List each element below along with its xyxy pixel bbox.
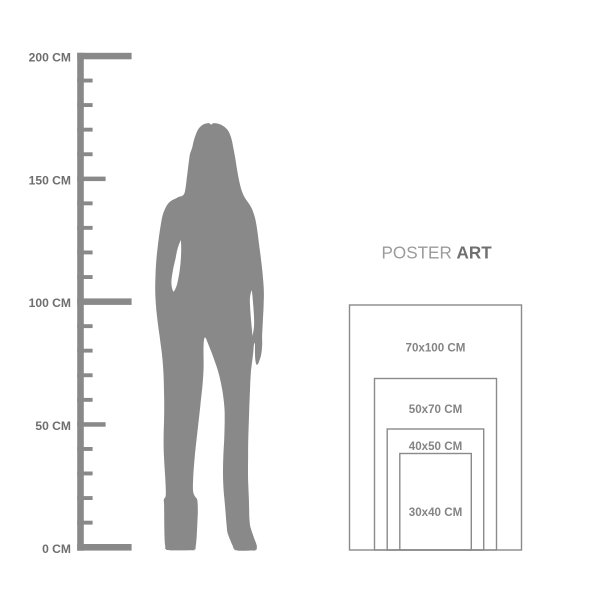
svg-text:0 CM: 0 CM [42, 542, 71, 556]
svg-text:100 CM: 100 CM [29, 296, 71, 310]
svg-text:50x70 CM: 50x70 CM [409, 403, 463, 416]
svg-text:40x50 CM: 40x50 CM [409, 440, 463, 453]
svg-text:70x100 CM: 70x100 CM [406, 342, 466, 355]
svg-text:150 CM: 150 CM [29, 173, 71, 187]
svg-text:50 CM: 50 CM [35, 419, 71, 433]
svg-text:200 CM: 200 CM [29, 51, 71, 65]
svg-text:POSTER ART: POSTER ART [382, 243, 493, 262]
svg-text:30x40 CM: 30x40 CM [409, 506, 463, 519]
